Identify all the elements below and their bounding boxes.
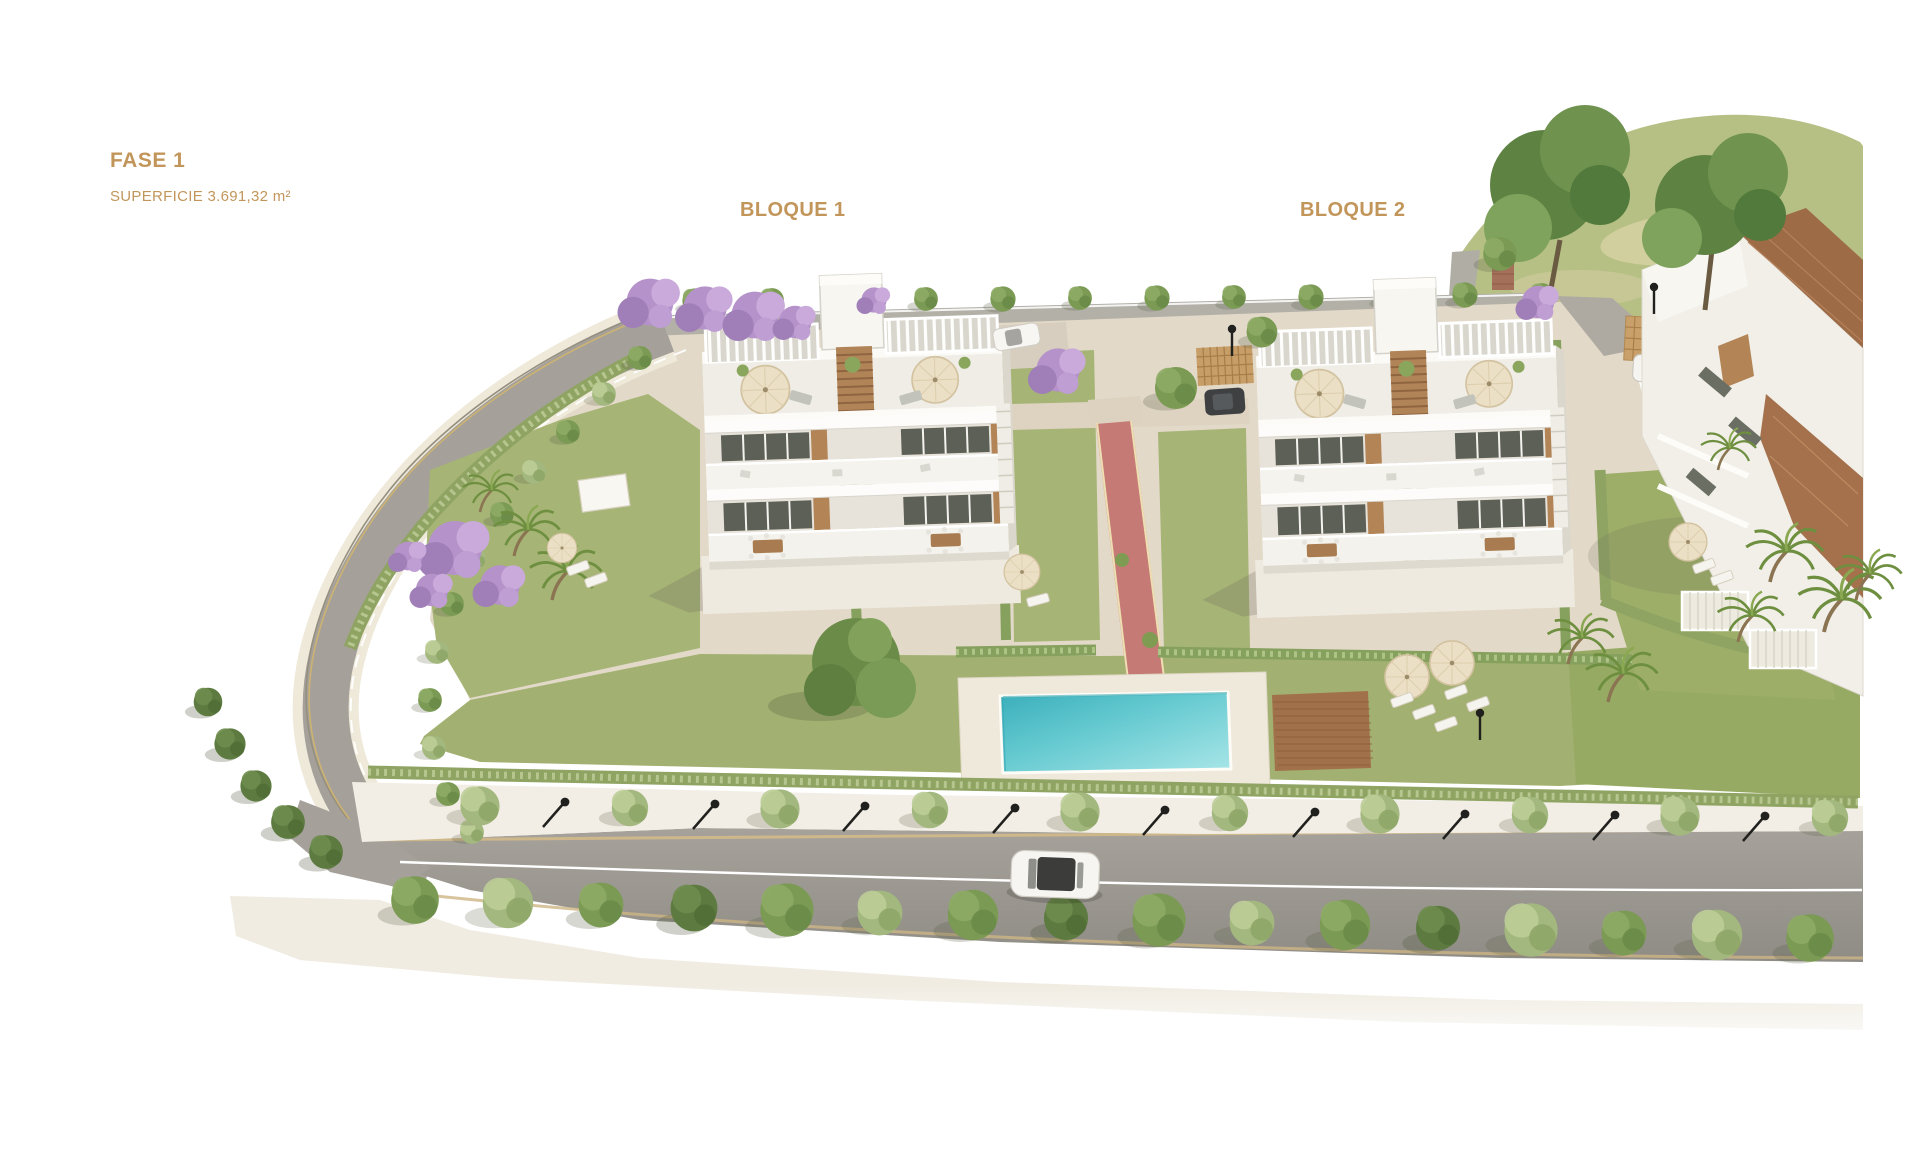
bottom-fade (200, 985, 1920, 1055)
phase-title: FASE 1 (110, 149, 185, 173)
site-plan-render-page: FASE 1 SUPERFICIE 3.691,32 m² BLOQUE 1 B… (0, 0, 1920, 1166)
bloque-2-label: BLOQUE 2 (1300, 199, 1405, 222)
wooden-deck (1272, 691, 1373, 771)
white-car-driving (1006, 850, 1104, 905)
phase-surface-label: SUPERFICIE 3.691,32 m² (110, 188, 291, 205)
bloque-1-label: BLOQUE 1 (740, 199, 845, 222)
aerial-render (0, 0, 1920, 1166)
dark-car (1204, 387, 1246, 416)
swimming-pool (1000, 692, 1231, 773)
